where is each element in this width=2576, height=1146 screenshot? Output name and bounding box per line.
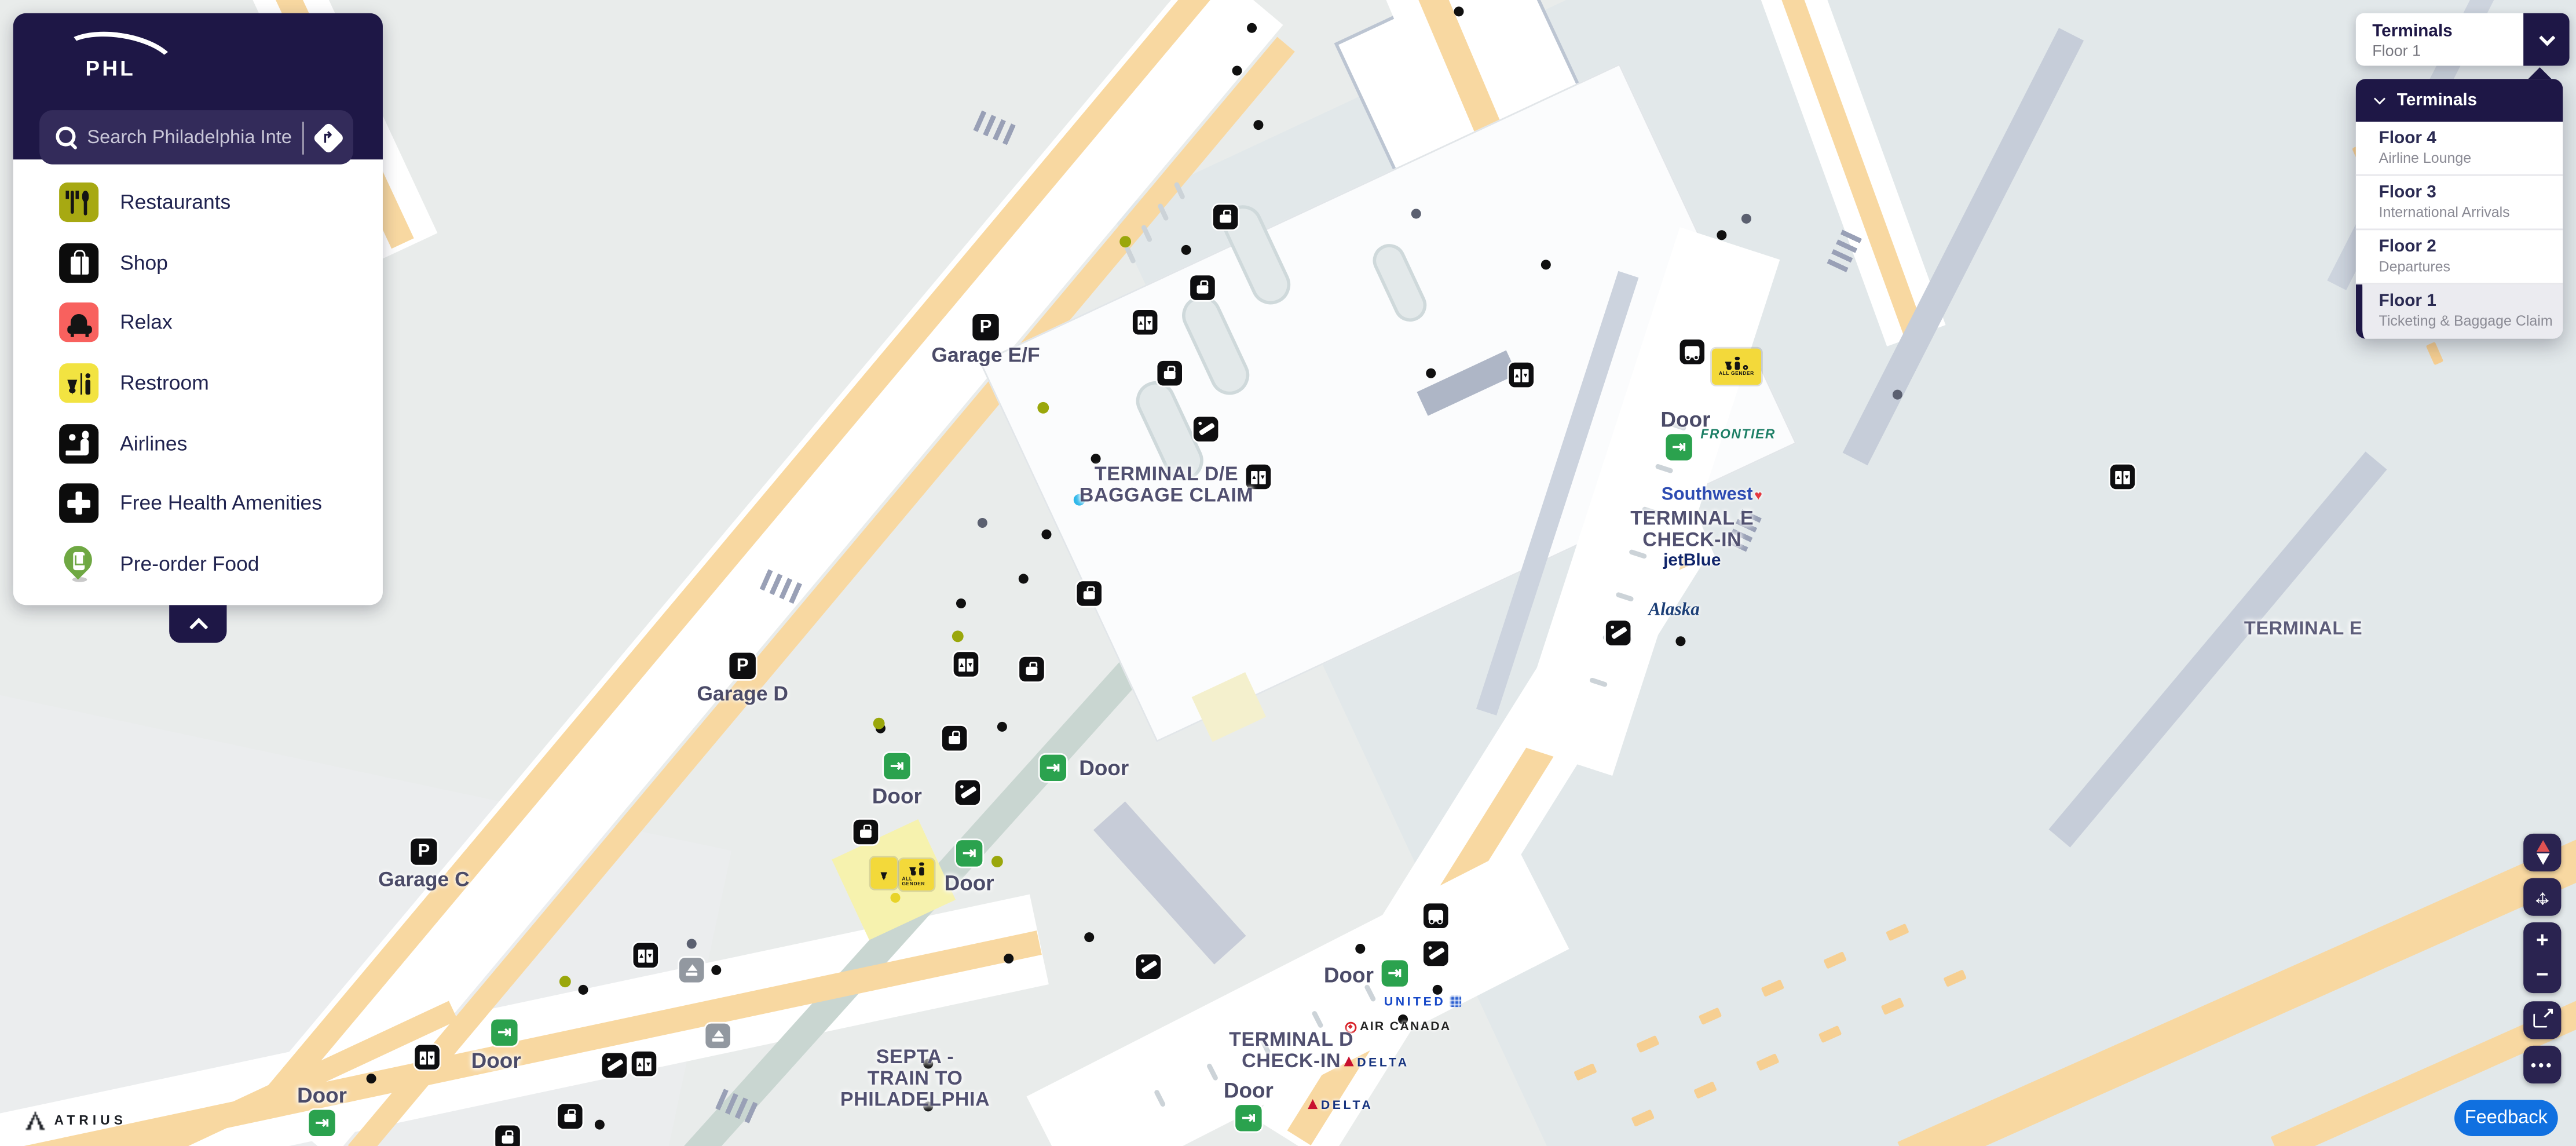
door-label: Door xyxy=(945,871,994,896)
zoom-controls: + − xyxy=(2523,922,2561,993)
floor-selector-title: Terminals xyxy=(2372,21,2453,41)
garage-label: Garage E/F xyxy=(931,343,1040,366)
poi-dot xyxy=(997,722,1007,732)
poi-dot xyxy=(367,1074,376,1083)
floor-selector-current: Floor 1 xyxy=(2372,43,2421,61)
luggage-icon[interactable] xyxy=(1077,581,1102,606)
poi-dot xyxy=(1232,66,1242,76)
floor-option-desc: Airline Lounge xyxy=(2379,149,2472,166)
luggage-icon[interactable] xyxy=(495,1126,520,1146)
door-icon[interactable]: ⇥ xyxy=(1666,434,1692,460)
menu-item-label: Relax xyxy=(120,312,173,335)
door-label: Door xyxy=(1224,1078,1274,1103)
poi-dot xyxy=(1253,120,1263,130)
door-icon[interactable]: ⇥ xyxy=(309,1110,335,1136)
poi-dot xyxy=(1084,932,1094,942)
floor-option-2[interactable]: Floor 2 Departures xyxy=(2356,230,2563,284)
preorder-food-icon xyxy=(59,544,98,583)
sidebar-header: PHL ↱ xyxy=(13,13,383,160)
door-icon[interactable]: ⇥ xyxy=(1235,1105,1261,1131)
crosswalk xyxy=(973,111,1018,146)
poi-dot xyxy=(1541,260,1551,269)
luggage-icon[interactable] xyxy=(942,726,967,751)
sidebar: PHL ↱ Restaurants Shop Relax xyxy=(13,13,383,605)
luggage-icon[interactable] xyxy=(1157,361,1182,386)
luggage-icon[interactable] xyxy=(854,820,879,845)
floor-dropdown-header[interactable]: Terminals xyxy=(2356,79,2563,122)
airline-logo-delta: DELTA xyxy=(1344,1055,1410,1070)
menu-item-label: Restroom xyxy=(120,372,209,395)
menu-item-label: Free Health Amenities xyxy=(120,492,322,515)
floor-dropdown: Terminals Floor 4 Airline Lounge Floor 3… xyxy=(2356,79,2563,338)
machine-icon[interactable] xyxy=(679,958,704,983)
floor-option-1-selected[interactable]: Floor 1 Ticketing & Baggage Claim xyxy=(2356,284,2563,339)
sidebar-collapse-button[interactable] xyxy=(169,605,226,643)
menu-item-label: Airlines xyxy=(120,432,187,455)
chevron-down-icon xyxy=(2538,29,2555,45)
floor-option-title: Floor 3 xyxy=(2379,183,2436,202)
poi-dot xyxy=(1426,368,1436,378)
airport-map[interactable]: ▲▼▲▼▲▼▲▼▲▼▲▼▲▼▲▼PGarage E/FPGarage DPGar… xyxy=(0,0,2576,1146)
poi-dot xyxy=(595,1120,605,1130)
poi-dot xyxy=(1893,390,1902,400)
parking-icon[interactable]: P xyxy=(729,653,755,679)
door-label: Door xyxy=(1324,963,1374,988)
restaurants-icon xyxy=(59,183,98,222)
parking-icon[interactable]: P xyxy=(411,838,437,864)
area-label: TERMINAL D CHECK-IN xyxy=(1229,1030,1353,1072)
zoom-in-button[interactable]: + xyxy=(2523,922,2561,957)
area-label: TERMINAL E CHECK-IN xyxy=(1630,508,1754,551)
poi-dot xyxy=(978,518,987,528)
poi-dot xyxy=(1717,230,1726,240)
floor-dropdown-header-label: Terminals xyxy=(2397,90,2478,110)
poi-dot xyxy=(952,630,964,642)
poi-dot xyxy=(1247,23,1257,33)
poi-dot xyxy=(1037,402,1049,414)
door-icon[interactable]: ⇥ xyxy=(491,1019,517,1045)
chevron-up-icon xyxy=(189,617,207,636)
door-label: Door xyxy=(872,783,922,808)
airlines-icon xyxy=(59,424,98,463)
area-label: TERMINAL E xyxy=(2244,619,2362,640)
floor-selector-card[interactable]: Terminals Floor 1 xyxy=(2356,13,2570,66)
restroom-sign xyxy=(870,857,897,889)
floor-option-3[interactable]: Floor 3 International Arrivals xyxy=(2356,176,2563,231)
door-icon[interactable]: ⇥ xyxy=(884,753,910,779)
poi-dot xyxy=(1004,954,1013,963)
health-icon xyxy=(59,484,98,523)
restroom-sign: ALL GENDER xyxy=(1712,349,1761,385)
category-menu: Restaurants Shop Relax Restroom Airlines… xyxy=(13,173,383,594)
door-icon[interactable]: ⇥ xyxy=(1382,960,1408,986)
shop-icon xyxy=(59,243,98,283)
elevator-icon[interactable]: ▲▼ xyxy=(415,1045,440,1070)
poi-dot xyxy=(1355,944,1365,954)
menu-item-restaurants[interactable]: Restaurants xyxy=(13,173,383,233)
floor-selector-toggle-button[interactable] xyxy=(2523,13,2569,66)
parking-icon[interactable]: P xyxy=(972,314,998,340)
luggage-icon[interactable] xyxy=(1213,205,1238,229)
poi-dot xyxy=(1675,636,1685,646)
zoom-out-button[interactable]: − xyxy=(2523,957,2561,992)
floor-option-title: Floor 2 xyxy=(2379,237,2436,257)
atrius-logo-icon xyxy=(26,1112,45,1130)
escalator-icon[interactable] xyxy=(956,780,980,805)
poi-dot xyxy=(711,965,721,975)
door-icon[interactable]: ⇥ xyxy=(956,840,982,866)
search-input[interactable] xyxy=(77,127,302,147)
poi-dot xyxy=(579,985,588,995)
elevator-icon[interactable]: ▲▼ xyxy=(1133,310,1158,335)
elevator-icon[interactable]: ▲▼ xyxy=(632,1052,657,1076)
escalator-icon[interactable] xyxy=(1606,621,1631,645)
airline-logo-frontier: FRONTIER xyxy=(1700,426,1776,441)
poi-dot xyxy=(1041,530,1051,539)
area-label: TERMINAL D/E BAGGAGE CLAIM xyxy=(1080,463,1254,506)
compass-button[interactable] xyxy=(2523,834,2561,871)
garage-label: Garage D xyxy=(697,681,788,705)
poi-dot xyxy=(687,939,697,948)
poi-dot xyxy=(1433,985,1443,995)
bus-icon[interactable] xyxy=(1680,340,1705,364)
elevator-icon[interactable]: ▲▼ xyxy=(1509,363,1534,388)
search-icon xyxy=(56,127,77,148)
floor-option-title: Floor 1 xyxy=(2379,291,2436,311)
compass-icon xyxy=(2535,840,2549,865)
directions-icon: ↱ xyxy=(312,121,345,154)
floor-option-desc: International Arrivals xyxy=(2379,204,2510,220)
poi-dot xyxy=(559,976,571,987)
poi-dot xyxy=(890,893,900,903)
relax-icon xyxy=(59,304,98,343)
bus-icon[interactable] xyxy=(1424,903,1448,928)
airline-logo-jetblue: jetBlue xyxy=(1663,551,1721,571)
app-viewport: ▲▼▲▼▲▼▲▼▲▼▲▼▲▼▲▼PGarage E/FPGarage DPGar… xyxy=(0,0,2576,1146)
poi-dot xyxy=(1181,245,1191,255)
luggage-icon[interactable] xyxy=(1190,275,1215,300)
door-label: Door xyxy=(471,1048,521,1073)
menu-item-label: Pre-order Food xyxy=(120,552,259,575)
poi-dot xyxy=(1741,214,1751,224)
escalator-icon[interactable] xyxy=(1424,941,1448,966)
directions-button[interactable]: ↱ xyxy=(304,110,353,165)
floor-option-desc: Ticketing & Baggage Claim xyxy=(2379,312,2553,329)
phl-logo: PHL xyxy=(86,56,136,81)
elevator-icon[interactable]: ▲▼ xyxy=(954,652,979,677)
poi-dot xyxy=(873,718,885,729)
elevator-icon[interactable]: ▲▼ xyxy=(2110,465,2135,490)
feedback-button[interactable]: Feedback xyxy=(2454,1100,2558,1136)
menu-item-label: Restaurants xyxy=(120,191,230,214)
chevron-down-icon xyxy=(2374,92,2385,104)
share-button[interactable]: ↗ xyxy=(2523,1001,2561,1039)
menu-item-label: Shop xyxy=(120,251,168,275)
menu-item-restroom[interactable]: Restroom xyxy=(13,353,383,414)
poi-dot xyxy=(1119,236,1131,247)
elevator-icon[interactable]: ▲▼ xyxy=(634,943,658,968)
menu-item-relax[interactable]: Relax xyxy=(13,293,383,353)
airline-logo-alaska: Alaska xyxy=(1648,600,1699,620)
ellipsis-icon: ••• xyxy=(2531,1056,2554,1072)
airline-logo-united: UNITED xyxy=(1384,994,1461,1009)
pan-button[interactable]: ↔↕ xyxy=(2523,878,2561,915)
airline-logo-aircanada: AIR CANADA xyxy=(1345,1019,1451,1034)
poi-dot xyxy=(1019,574,1029,583)
escalator-icon[interactable] xyxy=(602,1053,627,1078)
poi-dot xyxy=(991,856,1003,867)
machine-icon[interactable] xyxy=(705,1024,730,1049)
menu-item-free-health-amenities[interactable]: Free Health Amenities xyxy=(13,473,383,534)
luggage-icon[interactable] xyxy=(558,1104,583,1129)
poi-dot xyxy=(1454,6,1463,16)
map-shape xyxy=(1093,801,1246,964)
more-options-button[interactable]: ••• xyxy=(2523,1046,2561,1083)
menu-item-airlines[interactable]: Airlines xyxy=(13,413,383,473)
area-label: SEPTA - TRAIN TO PHILADELPHIA xyxy=(840,1047,990,1111)
door-icon[interactable]: ⇥ xyxy=(1040,755,1066,781)
airline-logo-southwest: Southwest♥ xyxy=(1662,485,1762,505)
floor-option-title: Floor 4 xyxy=(2379,128,2436,148)
garage-label: Garage C xyxy=(378,867,470,890)
attribution: ATRIUS xyxy=(26,1111,127,1129)
restroom-icon xyxy=(59,363,98,403)
floor-option-desc: Departures xyxy=(2379,258,2450,275)
door-label: Door xyxy=(1079,756,1129,780)
escalator-icon[interactable] xyxy=(1194,417,1219,441)
menu-item-preorder-food[interactable]: Pre-order Food xyxy=(13,534,383,594)
escalator-icon[interactable] xyxy=(1136,954,1161,979)
floor-option-4[interactable]: Floor 4 Airline Lounge xyxy=(2356,122,2563,176)
door-label: Door xyxy=(297,1083,347,1108)
restroom-sign: ALL GENDER xyxy=(899,859,934,890)
menu-item-shop[interactable]: Shop xyxy=(13,233,383,293)
search-bar: ↱ xyxy=(39,110,353,165)
attribution-text: ATRIUS xyxy=(54,1113,127,1128)
airline-logo-delta: DELTA xyxy=(1308,1097,1373,1112)
poi-dot xyxy=(956,598,966,608)
luggage-icon[interactable] xyxy=(1019,657,1044,682)
poi-dot xyxy=(1411,209,1421,218)
